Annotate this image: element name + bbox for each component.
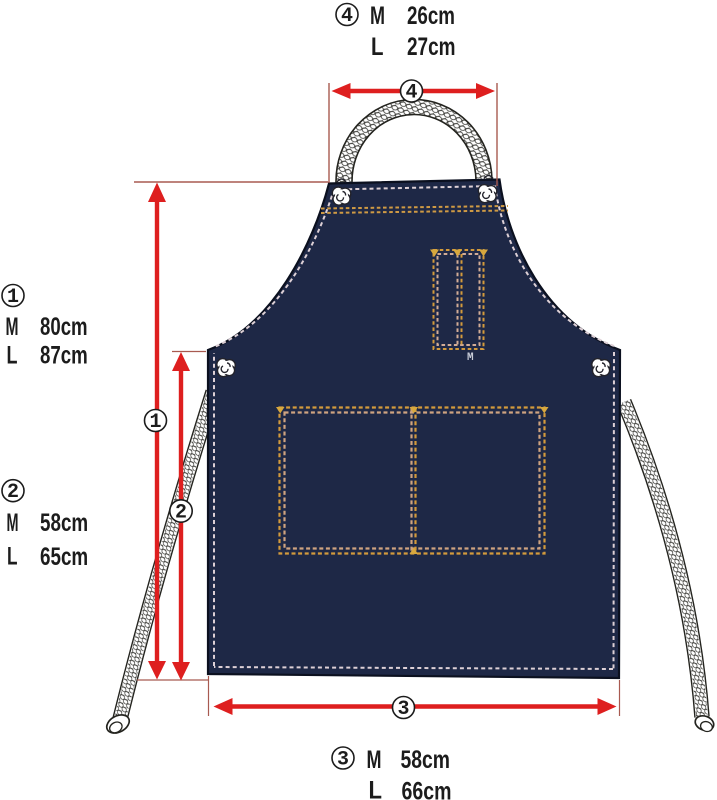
- svg-text:80cm: 80cm: [40, 313, 88, 341]
- svg-text:58cm: 58cm: [40, 509, 88, 537]
- svg-text:M: M: [370, 2, 385, 30]
- svg-text:2: 2: [7, 481, 19, 504]
- svg-text:L: L: [7, 543, 18, 571]
- svg-text:M: M: [7, 509, 19, 537]
- svg-text:2: 2: [175, 502, 187, 525]
- svg-text:87cm: 87cm: [40, 342, 88, 370]
- svg-text:27cm: 27cm: [407, 33, 456, 61]
- svg-text:M: M: [367, 746, 382, 774]
- svg-text:M: M: [6, 313, 19, 341]
- svg-text:66cm: 66cm: [402, 778, 452, 800]
- svg-text:L: L: [371, 33, 384, 61]
- svg-text:L: L: [369, 777, 383, 800]
- svg-text:1: 1: [149, 411, 161, 434]
- svg-text:4: 4: [405, 82, 417, 105]
- svg-text:65cm: 65cm: [40, 543, 88, 571]
- svg-text:1: 1: [7, 286, 19, 309]
- svg-text:26cm: 26cm: [407, 2, 455, 30]
- svg-text:58cm: 58cm: [401, 746, 451, 774]
- svg-text:L: L: [7, 342, 18, 370]
- svg-text:3: 3: [337, 749, 349, 772]
- svg-text:M: M: [467, 352, 474, 364]
- svg-text:4: 4: [341, 5, 353, 28]
- svg-text:3: 3: [397, 698, 409, 721]
